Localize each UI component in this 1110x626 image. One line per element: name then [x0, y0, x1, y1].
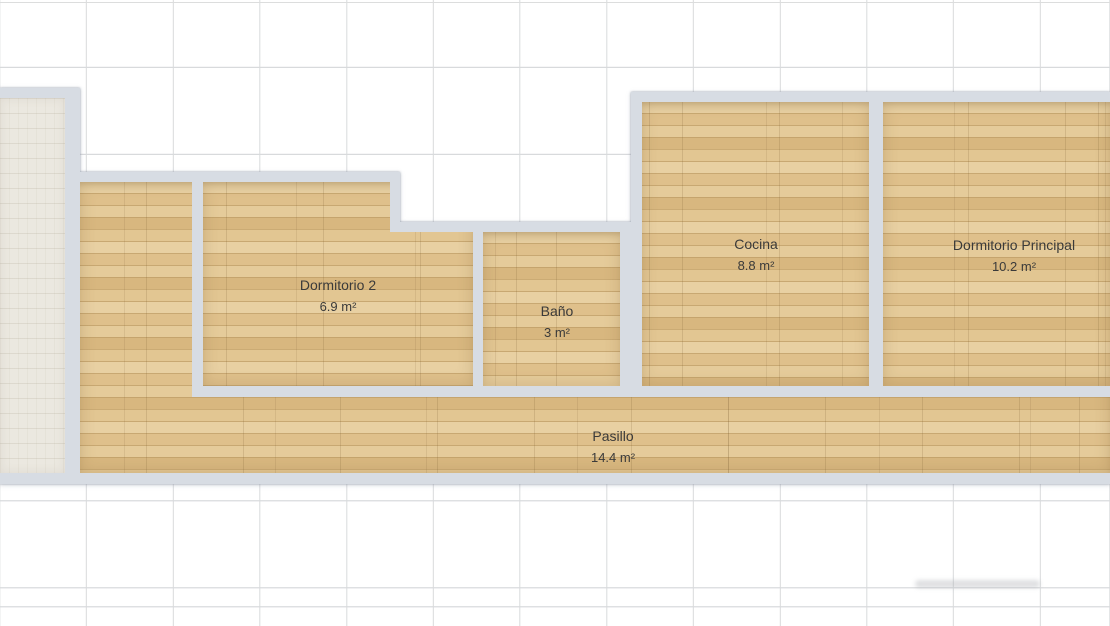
wall-cocina-dp-divider — [869, 92, 883, 398]
room-name: Pasillo — [591, 426, 635, 447]
wall-dormitorio2-left — [192, 172, 203, 397]
wall-rooms-bottom — [192, 386, 1110, 397]
room-name: Dormitorio Principal — [953, 235, 1075, 256]
label-dormitorio-2: Dormitorio 2 6.9 m² — [300, 275, 376, 317]
label-pasillo: Pasillo 14.4 m² — [591, 426, 635, 468]
room-area: 3 m² — [541, 322, 574, 343]
room-name: Dormitorio 2 — [300, 275, 376, 296]
room-area: 14.4 m² — [591, 447, 635, 468]
room-terrace-floor[interactable] — [0, 98, 65, 473]
label-cocina: Cocina 8.8 m² — [734, 234, 778, 276]
wall-strip-top — [80, 172, 400, 182]
label-bano: Baño 3 m² — [541, 301, 574, 343]
wall-bano-left — [473, 222, 483, 398]
room-name: Cocina — [734, 234, 778, 255]
wall-cocina-left — [631, 92, 642, 398]
room-area: 6.9 m² — [300, 296, 376, 317]
room-area: 10.2 m² — [953, 256, 1075, 277]
wall-outer-bottom — [0, 473, 1110, 484]
room-area: 8.8 m² — [734, 255, 778, 276]
wall-bano-top — [390, 222, 631, 232]
floorplan-canvas: Dormitorio 2 6.9 m² Baño 3 m² Cocina 8.8… — [0, 0, 1110, 626]
wall-bano-right — [620, 222, 631, 398]
label-dormitorio-principal: Dormitorio Principal 10.2 m² — [953, 235, 1075, 277]
room-name: Baño — [541, 301, 574, 322]
wall-terrace-right — [65, 88, 80, 484]
